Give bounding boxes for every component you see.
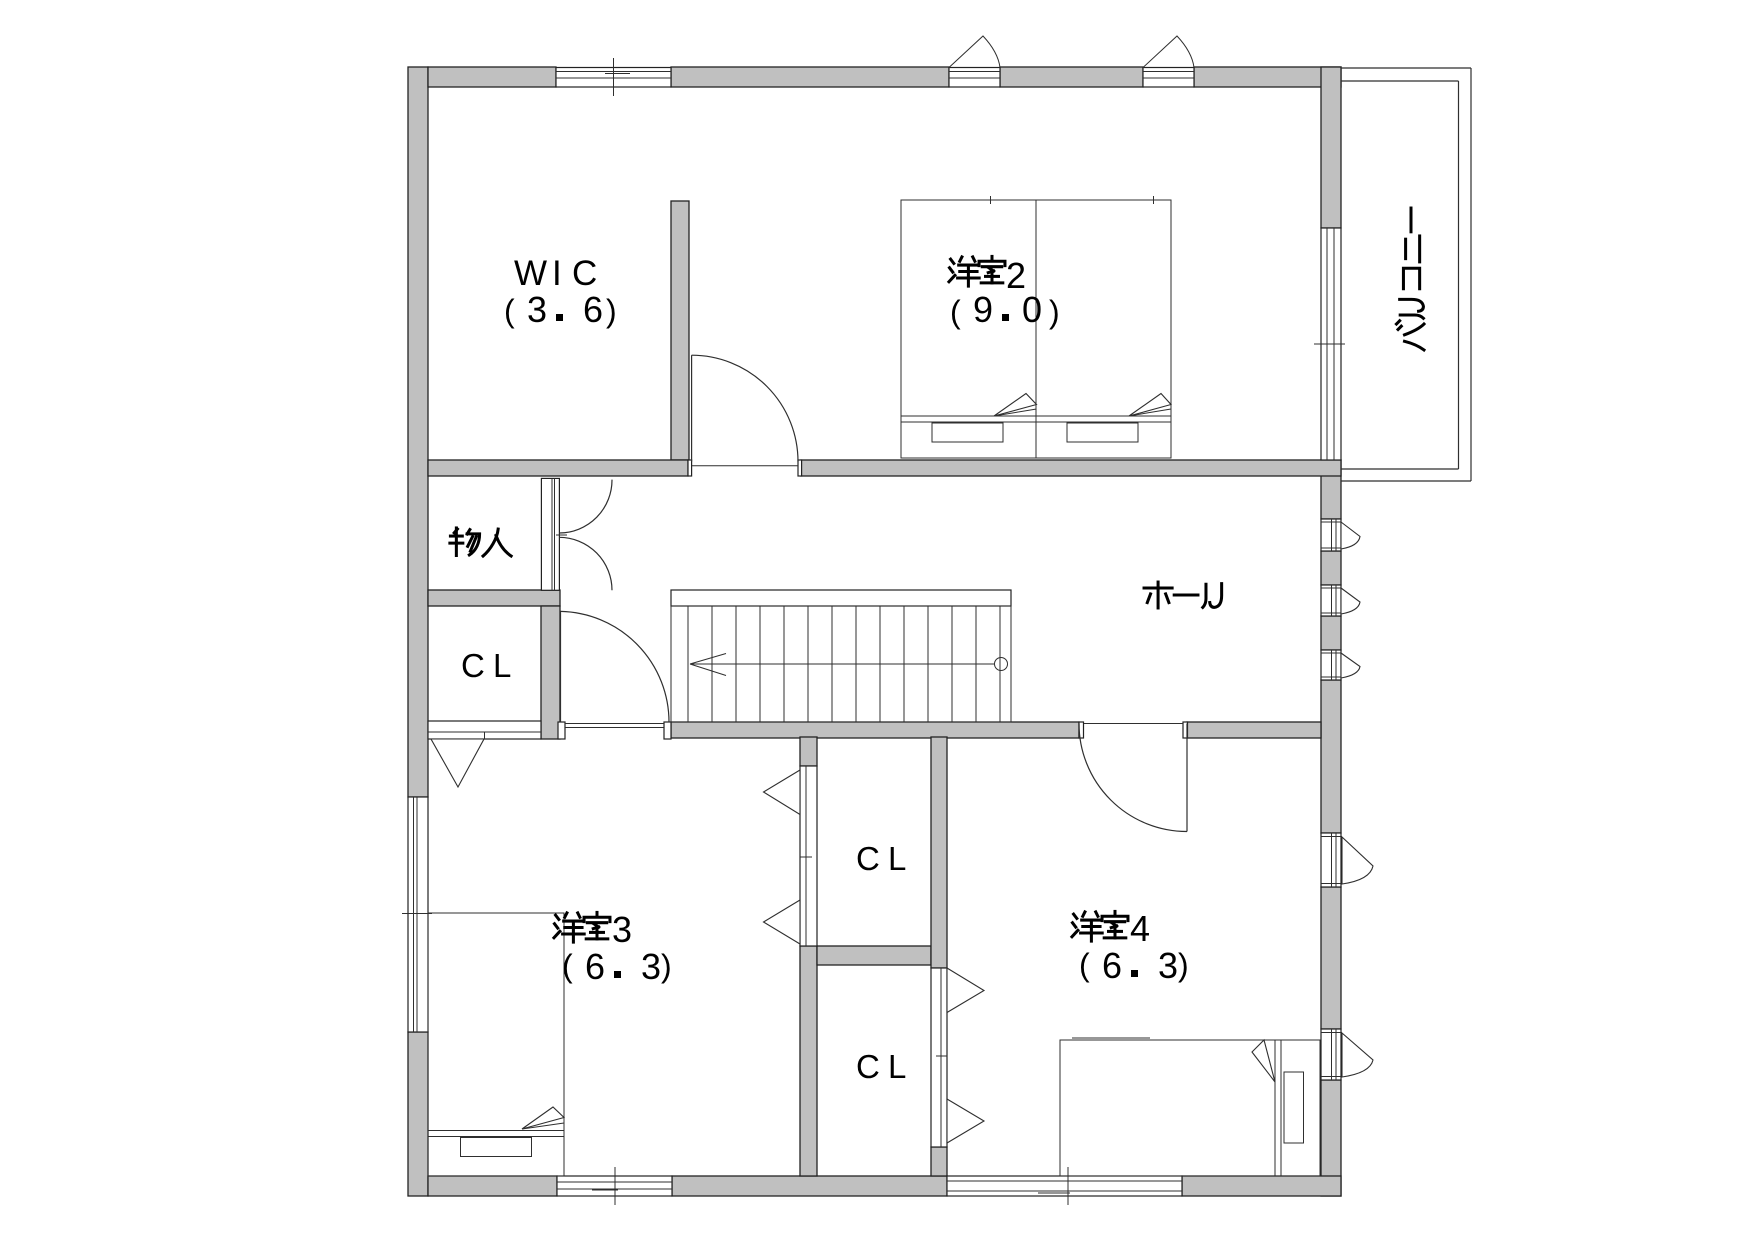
svg-text:(: ( [950,294,961,330]
svg-text:): ) [1049,294,1060,330]
svg-text:3: 3 [641,946,661,987]
svg-text:): ) [606,293,617,329]
svg-text:6: 6 [583,289,603,330]
svg-text:C: C [572,254,597,293]
svg-text:9: 9 [973,289,993,330]
svg-text:6: 6 [1102,945,1122,986]
svg-text:(: ( [504,293,515,329]
svg-text:C: C [856,840,880,877]
svg-text:(: ( [1079,947,1090,983]
svg-text:6: 6 [585,946,605,987]
svg-text:3: 3 [612,909,632,950]
svg-text:L: L [493,647,511,684]
svg-text:L: L [888,840,906,877]
svg-text:): ) [1178,947,1189,983]
svg-text:L: L [888,1048,906,1085]
svg-text:W: W [514,254,547,293]
svg-text:0: 0 [1022,289,1042,330]
svg-text:I: I [552,254,562,293]
svg-text:): ) [661,948,672,984]
svg-text:(: ( [562,948,573,984]
svg-text:C: C [461,647,485,684]
svg-text:3: 3 [1158,945,1178,986]
svg-text:C: C [856,1048,880,1085]
svg-text:4: 4 [1130,908,1150,949]
svg-text:3: 3 [527,289,547,330]
